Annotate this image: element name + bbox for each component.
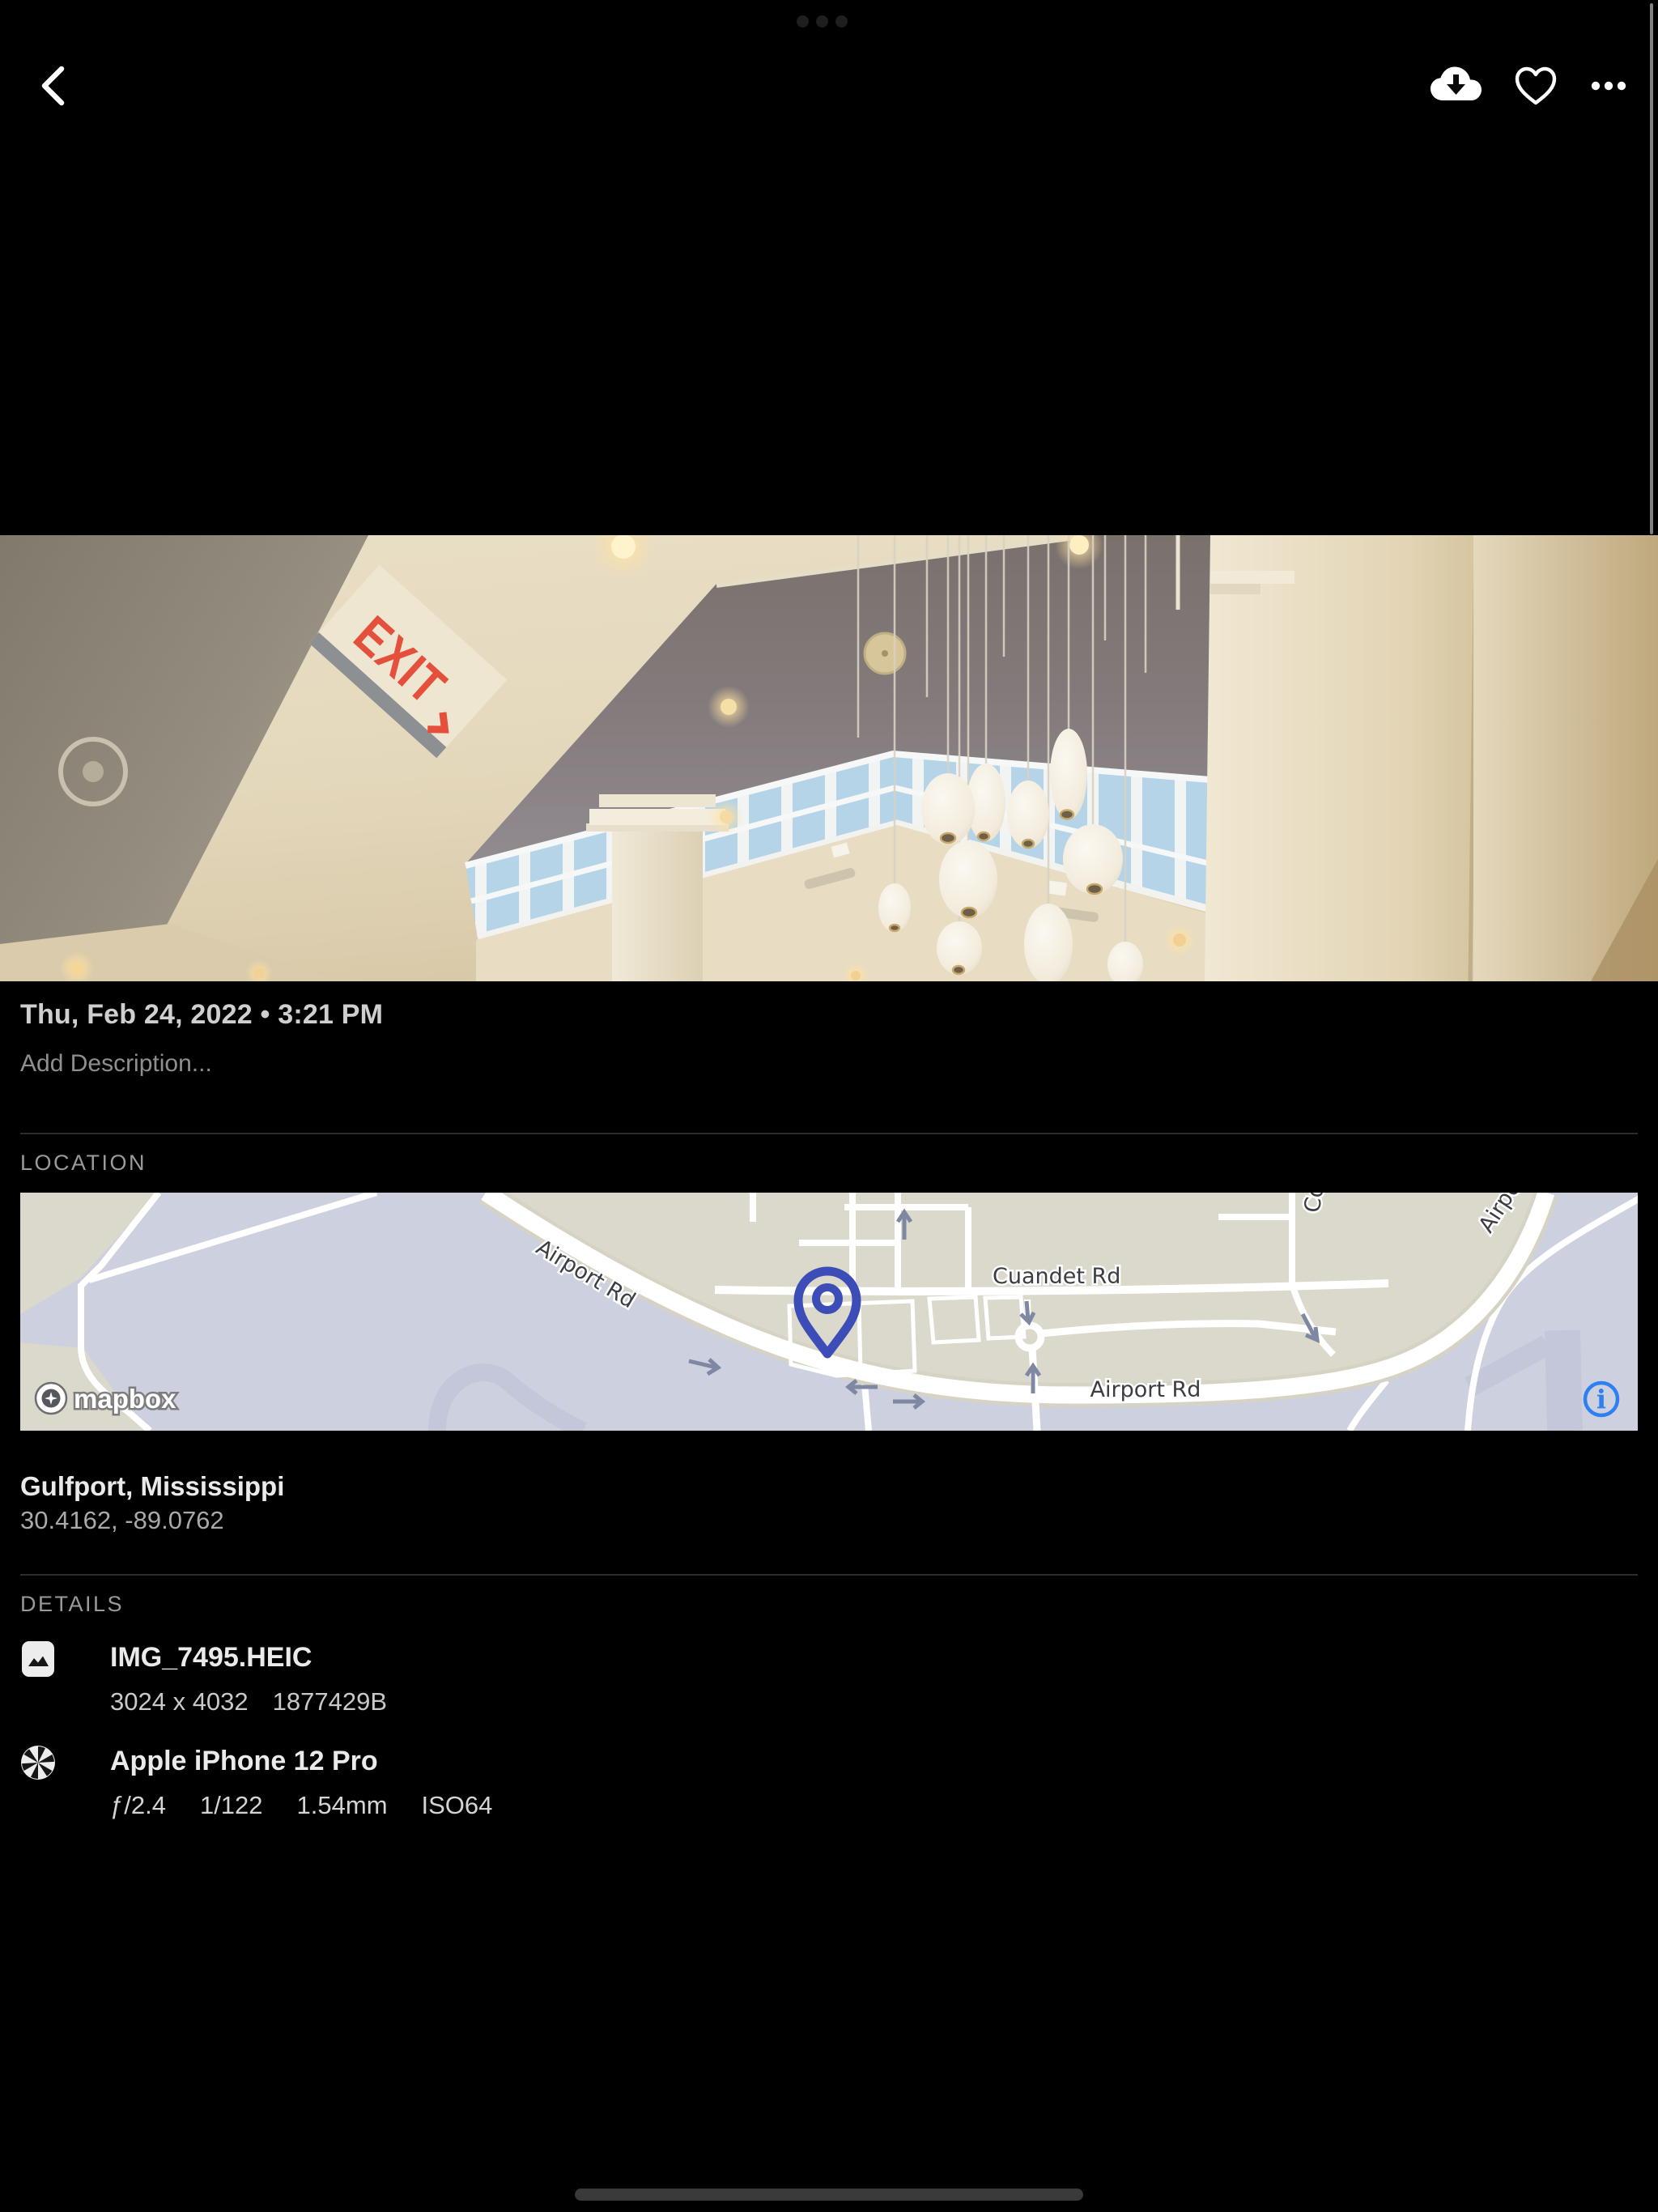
camera-aperture: ƒ/2.4 bbox=[110, 1791, 166, 1819]
image-file-icon bbox=[20, 1640, 56, 1678]
home-indicator[interactable] bbox=[575, 2189, 1083, 2201]
road-label-cuandet: Cuandet Rd bbox=[993, 1264, 1120, 1289]
ellipsis-icon bbox=[1592, 82, 1626, 90]
camera-shutter: 1/122 bbox=[200, 1791, 263, 1819]
more-button[interactable] bbox=[1580, 63, 1637, 108]
place-name: Gulfport, Mississippi bbox=[20, 1471, 284, 1502]
file-name: IMG_7495.HEIC bbox=[110, 1642, 312, 1674]
divider bbox=[20, 1574, 1638, 1576]
photo-detail-screen: EXIT bbox=[0, 0, 1658, 2212]
road-label-airport-bottom: Airport Rd bbox=[1090, 1377, 1201, 1402]
photo-illustration: EXIT bbox=[0, 535, 1658, 981]
camera-specs: ƒ/2.41/1221.54mmISO64 bbox=[110, 1791, 526, 1820]
file-size: 1877429B bbox=[273, 1687, 387, 1716]
download-button[interactable] bbox=[1428, 63, 1485, 108]
heart-icon bbox=[1517, 69, 1554, 103]
divider bbox=[20, 1133, 1638, 1134]
file-dimensions: 3024 x 4032 bbox=[110, 1687, 249, 1716]
aperture-icon bbox=[20, 1744, 56, 1781]
cloud-download-icon bbox=[1431, 67, 1482, 101]
camera-iso: ISO64 bbox=[422, 1791, 493, 1819]
mapbox-wordmark: mapbox bbox=[74, 1384, 176, 1414]
details-section-label: DETAILS bbox=[20, 1592, 124, 1617]
favorite-button[interactable] bbox=[1507, 63, 1564, 108]
date-row[interactable]: Thu, Feb 24, 2022 • 3:21 PM bbox=[20, 999, 383, 1031]
back-button[interactable] bbox=[36, 63, 71, 108]
camera-focal-length: 1.54mm bbox=[297, 1791, 388, 1819]
app-switcher-dots-icon bbox=[797, 15, 848, 28]
file-meta: 3024 x 40321877429B bbox=[110, 1687, 411, 1716]
info-icon: i bbox=[1596, 1384, 1606, 1414]
location-map[interactable]: Airport Rd Cuandet Rd Airport Rd Airport… bbox=[20, 1193, 1638, 1431]
coordinates: 30.4162, -89.0762 bbox=[20, 1506, 224, 1535]
map-illustration: Airport Rd Cuandet Rd Airport Rd Airport… bbox=[20, 1193, 1638, 1431]
photo[interactable]: EXIT bbox=[0, 535, 1658, 981]
scroll-indicator[interactable] bbox=[1650, 3, 1653, 534]
location-section-label: LOCATION bbox=[20, 1151, 147, 1176]
chevron-left-icon bbox=[45, 69, 62, 103]
camera-name: Apple iPhone 12 Pro bbox=[110, 1746, 378, 1777]
description-field[interactable]: Add Description... bbox=[20, 1050, 212, 1078]
mapbox-logo[interactable]: mapbox mapbox bbox=[36, 1383, 176, 1414]
